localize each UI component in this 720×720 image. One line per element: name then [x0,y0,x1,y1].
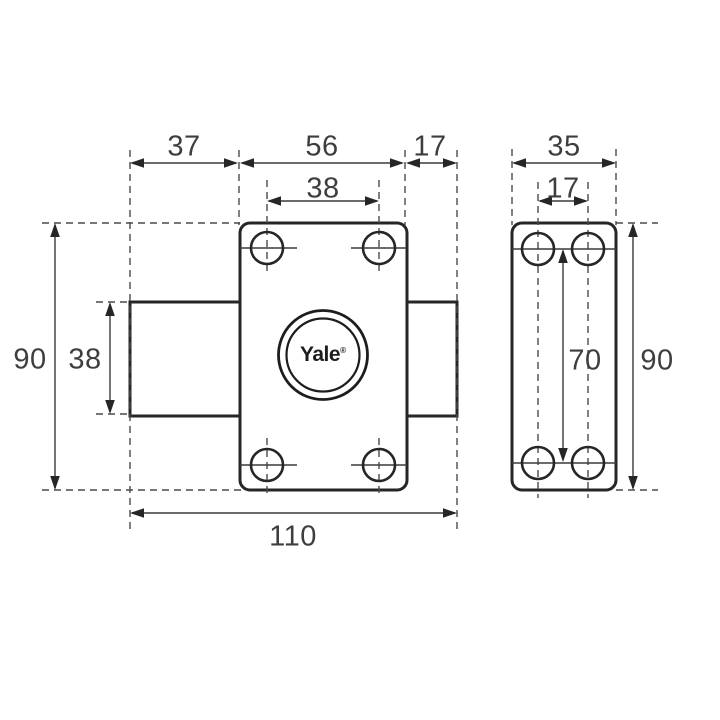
yale-logo-text: Yale® [300,343,346,367]
registered-trademark-icon: ® [340,346,346,355]
dim-side-height: 90 [640,347,673,376]
dim-front-body-width: 56 [305,133,338,162]
dim-front-bolt-depth: 17 [413,133,446,162]
front-left-cylinder [130,302,240,416]
dim-front-total-width: 110 [269,523,317,552]
front-right-bolt-housing [407,302,457,416]
front-view-body [130,223,457,490]
technical-drawing-canvas [0,0,720,720]
dim-front-height: 90 [13,346,46,375]
dim-side-hole-spacing-height: 70 [568,347,601,376]
dim-front-offset-left: 37 [167,133,200,162]
dim-front-hole-spacing-width: 38 [306,175,339,204]
dim-side-hole-spacing-width: 17 [546,175,579,204]
dim-front-cylinder-height: 38 [68,346,101,375]
lock-dimension-diagram: 37 56 17 35 38 17 90 38 70 90 110 Yale® [0,0,720,720]
dim-side-width: 35 [547,133,580,162]
